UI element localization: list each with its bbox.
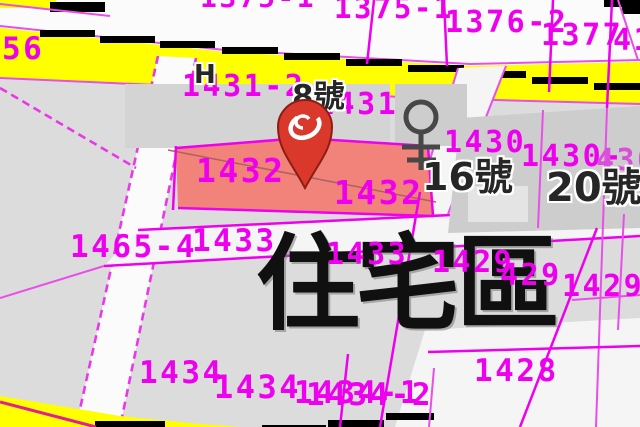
location-pin-icon[interactable] bbox=[278, 100, 332, 188]
cadastral-map[interactable]: 住宅區 1375-11375-11376-2137741561431-21431… bbox=[0, 0, 640, 427]
